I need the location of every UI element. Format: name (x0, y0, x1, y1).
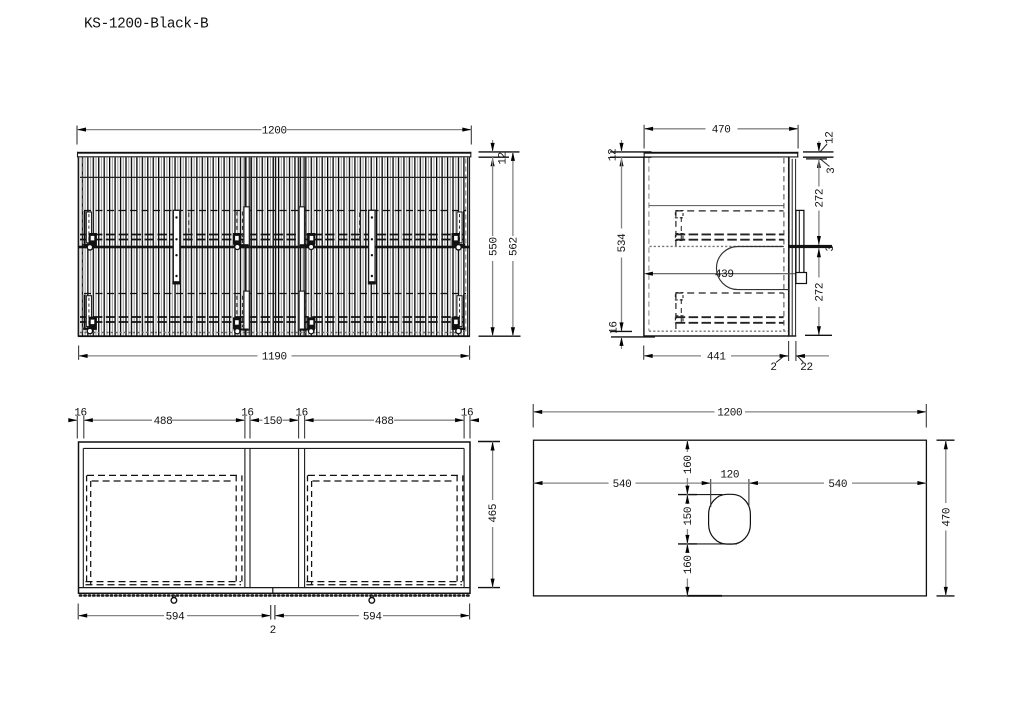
svg-text:594: 594 (363, 611, 383, 623)
svg-text:16: 16 (241, 407, 254, 419)
svg-text:1200: 1200 (717, 408, 742, 420)
svg-text:160: 160 (683, 555, 695, 574)
svg-text:1200: 1200 (262, 125, 287, 137)
svg-text:441: 441 (707, 352, 727, 364)
svg-text:3: 3 (826, 168, 838, 174)
svg-text:16: 16 (295, 407, 308, 419)
svg-text:12: 12 (607, 149, 619, 162)
svg-text:562: 562 (509, 237, 521, 256)
svg-text:534: 534 (617, 233, 629, 253)
svg-text:12: 12 (498, 152, 510, 165)
svg-text:470: 470 (941, 508, 953, 527)
svg-text:550: 550 (488, 237, 500, 256)
svg-text:16: 16 (609, 321, 621, 334)
svg-text:150: 150 (683, 507, 695, 526)
svg-text:160: 160 (683, 455, 695, 474)
svg-text:540: 540 (828, 479, 847, 491)
svg-text:2: 2 (770, 362, 776, 374)
svg-text:540: 540 (613, 479, 632, 491)
svg-text:470: 470 (712, 125, 731, 137)
svg-text:488: 488 (375, 416, 394, 428)
svg-text:272: 272 (815, 189, 827, 208)
svg-text:488: 488 (154, 416, 173, 428)
svg-text:KS-1200-Black-B: KS-1200-Black-B (84, 17, 209, 33)
svg-text:594: 594 (166, 611, 186, 623)
svg-text:22: 22 (800, 362, 813, 374)
svg-text:3: 3 (825, 245, 837, 251)
svg-text:272: 272 (815, 283, 827, 302)
svg-text:12: 12 (825, 132, 837, 145)
svg-text:16: 16 (74, 407, 87, 419)
svg-text:150: 150 (263, 416, 282, 428)
svg-text:439: 439 (715, 269, 734, 281)
svg-text:120: 120 (720, 469, 739, 481)
svg-text:465: 465 (488, 504, 500, 523)
svg-text:16: 16 (461, 407, 474, 419)
svg-text:1190: 1190 (262, 352, 287, 364)
svg-text:2: 2 (270, 625, 276, 637)
